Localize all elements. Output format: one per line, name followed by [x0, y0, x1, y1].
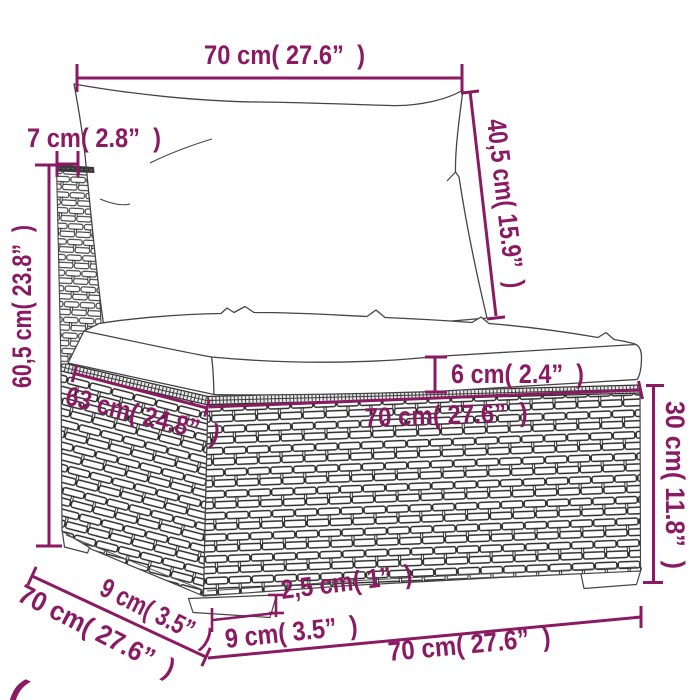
svg-text:7 cm( 2.8” ): 7 cm( 2.8” )	[27, 123, 161, 153]
svg-text:60,5 cm( 23.8” ): 60,5 cm( 23.8” )	[7, 225, 37, 388]
svg-text:6 cm( 2.4” ): 6 cm( 2.4” )	[451, 359, 584, 389]
svg-text:70 cm( 27.6” ): 70 cm( 27.6” )	[204, 40, 365, 70]
svg-text:70 cm( 27.6” ): 70 cm( 27.6” )	[364, 397, 528, 433]
svg-text:30 cm( 11.8” ): 30 cm( 11.8” )	[660, 401, 690, 569]
